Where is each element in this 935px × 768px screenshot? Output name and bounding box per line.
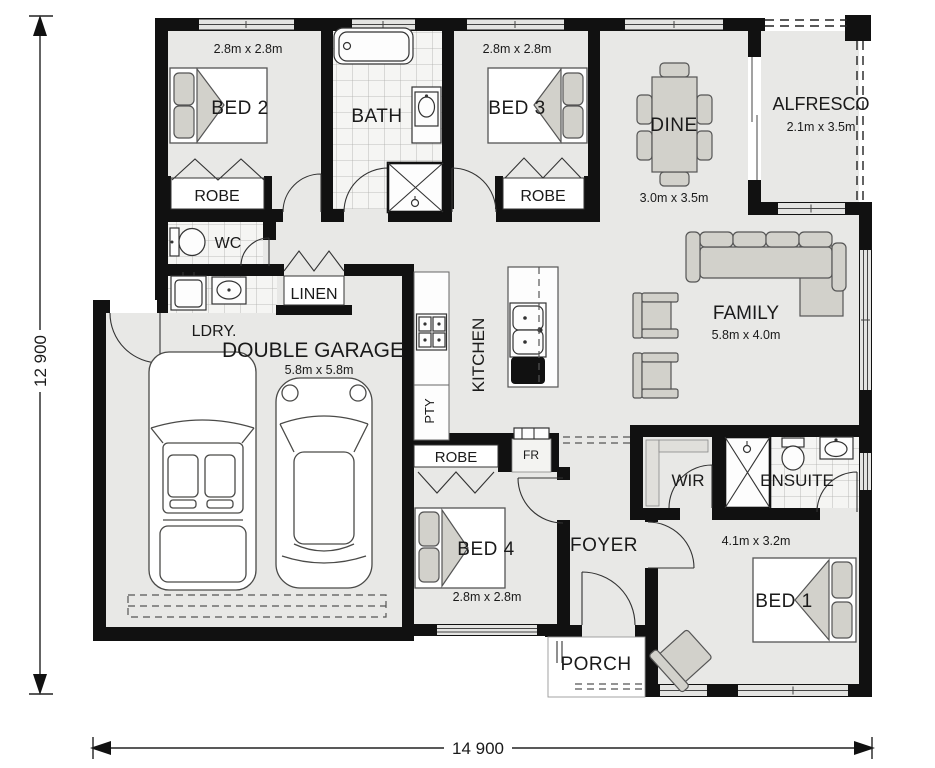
- fridge-icon: [514, 428, 549, 439]
- sliding-door: [778, 203, 845, 214]
- window: [738, 685, 848, 696]
- toilet-icon: [170, 228, 205, 256]
- bath-label: BATH: [351, 106, 402, 127]
- dimension-depth: 12 900: [29, 15, 53, 695]
- armchair-icon: [633, 353, 678, 398]
- basin-icon: [820, 437, 853, 459]
- toilet-icon: [782, 438, 804, 470]
- bed4-label: BED 4: [457, 539, 514, 560]
- kitchen-island: [508, 267, 558, 387]
- family-size: 5.8m x 4.0m: [712, 328, 781, 342]
- garage-label: DOUBLE GARAGE: [222, 339, 404, 362]
- window: [860, 250, 871, 390]
- ensuite-label: ENSUITE: [760, 471, 834, 490]
- garage-size: 5.8m x 5.8m: [285, 363, 354, 377]
- family-label: FAMILY: [713, 303, 779, 324]
- bathtub-icon: [334, 28, 413, 64]
- bed1-label: BED 1: [755, 591, 812, 612]
- alfresco-label: ALFRESCO: [772, 94, 869, 114]
- bed3-label: BED 3: [488, 98, 545, 119]
- robe2-label: ROBE: [194, 188, 239, 205]
- pantry-label: PTY: [422, 398, 437, 424]
- depth-dimension-label: 12 900: [31, 335, 50, 387]
- kitchen-label: KITCHEN: [469, 318, 488, 393]
- bed3-size: 2.8m x 2.8m: [483, 42, 552, 56]
- laundry-label: LDRY.: [192, 323, 237, 340]
- dine-label: DINE: [650, 115, 697, 136]
- linen-label: LINEN: [290, 286, 337, 303]
- floor-plan-page: BED 2 2.8m x 2.8m BATH BED 3 2.8m x 2.8m…: [0, 0, 935, 768]
- wc-label: WC: [215, 235, 242, 252]
- window: [625, 20, 723, 30]
- shower-icon: [388, 163, 443, 212]
- robe4-label: ROBE: [435, 449, 478, 466]
- car-icon: [276, 378, 372, 588]
- armchair-icon: [633, 293, 678, 338]
- width-dimension-label: 14 900: [452, 739, 504, 758]
- dine-size: 3.0m x 3.5m: [640, 191, 709, 205]
- foyer-label: FOYER: [570, 535, 638, 556]
- window: [467, 20, 564, 30]
- fridge-label: FR: [523, 448, 539, 462]
- laundry-sink-icon: [212, 277, 246, 304]
- laundry-tub-icon: [171, 272, 206, 310]
- car-icon: [149, 352, 256, 590]
- dimension-width: 14 900: [90, 737, 875, 759]
- alfresco-size: 2.1m x 3.5m: [787, 120, 856, 134]
- bed2-size: 2.8m x 2.8m: [214, 42, 283, 56]
- bed4-size: 2.8m x 2.8m: [453, 590, 522, 604]
- window: [860, 453, 871, 490]
- window: [199, 20, 294, 30]
- vanity-icon: [412, 87, 441, 143]
- window: [437, 625, 537, 635]
- robe3-label: ROBE: [520, 188, 565, 205]
- bed1-size: 4.1m x 3.2m: [722, 534, 791, 548]
- bed2-label: BED 2: [211, 98, 268, 119]
- wir-label: WIR: [671, 471, 704, 490]
- porch-label: PORCH: [560, 654, 631, 675]
- floor-plan-canvas: BED 2 2.8m x 2.8m BATH BED 3 2.8m x 2.8m…: [0, 0, 935, 768]
